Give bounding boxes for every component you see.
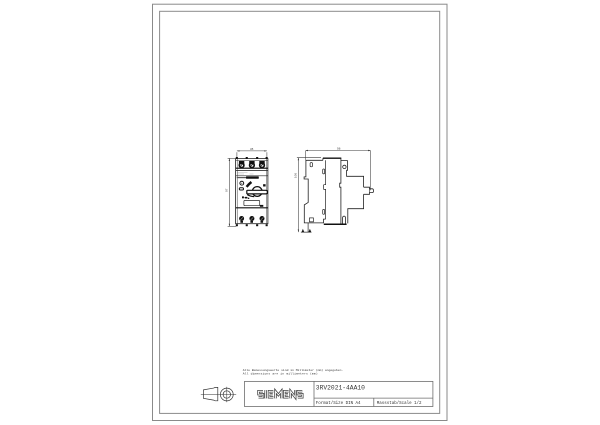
svg-text:3RV2021-4AA10: 3RV2021-4AA10 (316, 385, 365, 392)
svg-text:Format/Size DIN A4: Format/Size DIN A4 (316, 401, 361, 406)
svg-text:97: 97 (226, 188, 229, 192)
svg-text:Massstab/Scale 1/2: Massstab/Scale 1/2 (377, 401, 422, 406)
svg-text:All dimensions are in millimet: All dimensions are in millimeters (mm) (243, 371, 318, 375)
svg-text:106: 106 (295, 173, 298, 178)
svg-text:96: 96 (337, 148, 341, 151)
svg-text:45: 45 (250, 148, 254, 151)
